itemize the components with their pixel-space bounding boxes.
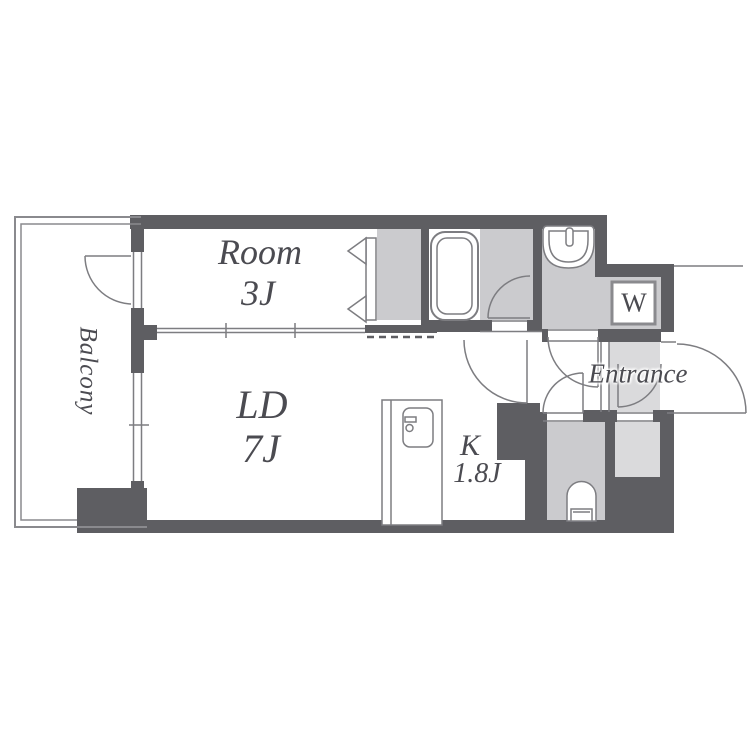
wall-right [660,422,674,533]
wall-entrance-bottom-jamb [653,410,674,422]
wall-toilet-left [540,412,547,522]
wall-kitchen-right [525,460,540,522]
wall-washer-right [661,276,674,332]
wall-under-shoe-storage [605,477,660,522]
sliding-partition [157,323,365,338]
kitchen-name-label: K [460,431,480,461]
folding-door-icon-bottom [348,296,366,322]
ld-door-swing [464,340,527,403]
wall-washer-top [595,264,674,277]
toilet-tank [571,509,592,521]
washroom-doorway-lines [548,330,598,341]
wall-toilet-shoe-divider [605,422,615,478]
toilet-doorway-lines [543,413,583,421]
wall-left-upper-jamb [131,229,144,252]
closet-door-panel [366,238,376,320]
room-name-label: Room [218,234,302,270]
wall-hall-bottom [583,410,617,422]
ld-window [129,373,149,481]
ld-size-label: 7J [242,429,280,469]
room-size-label: 3J [241,275,275,311]
wall-closet-bath-divider [421,224,429,332]
shoe-storage-floor [615,422,660,477]
wall-washroom-bottom [598,329,661,342]
folding-door-icon-top [348,238,366,264]
balcony-door-swing [85,256,131,304]
wall-bath-bottom-right [527,320,542,332]
wall-left-lower-jamb [131,481,144,489]
ld-name-label: LD [236,385,287,425]
wall-step-right [595,229,607,265]
wall-bath-bottom-left [421,320,492,332]
pillar-kitchen [497,403,540,460]
washbasin-tap [566,228,573,246]
balcony-label: Balcony [76,327,101,416]
balcony-door-frame [134,252,142,308]
entrance-step-lines [617,413,653,421]
wall-partition-stub [144,325,157,340]
floor-plan: Room 3J LD 7J K 1.8J Balcony Entrance W [0,0,750,750]
bathroom-floor [480,229,533,320]
wall-left-middle [131,308,144,373]
entrance-label: Entrance [589,361,688,388]
wall-washroom-doorjamb-left [542,329,548,342]
closet-floor [377,229,421,320]
wall-bath-washroom-divider [533,224,542,332]
washer-label: W [621,290,646,317]
kitchen-size-label: 1.8J [453,460,500,488]
toilet-door-swing [543,373,583,413]
